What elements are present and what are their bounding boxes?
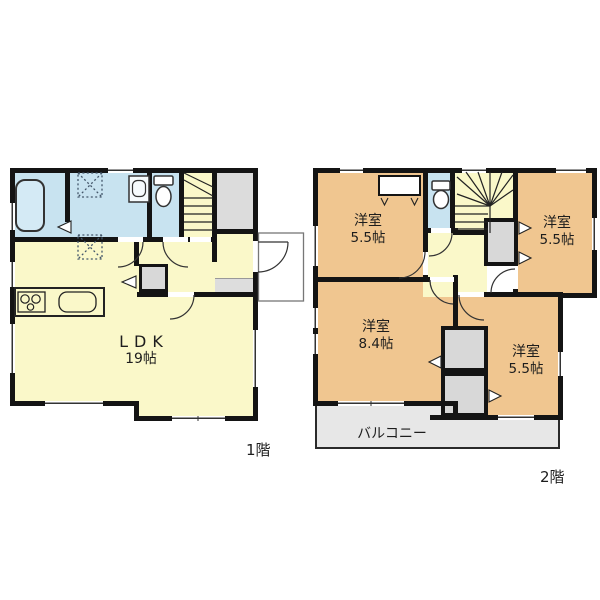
- toilet-icon: [432, 181, 450, 209]
- stairs-icon: [184, 173, 213, 230]
- washing-machine-pad-icon: [78, 173, 102, 197]
- fixtures-layer: [0, 0, 600, 600]
- door-arc-icon: [399, 233, 515, 320]
- washing-machine-pad-icon: [78, 235, 102, 259]
- toilet-icon: [154, 176, 173, 207]
- room-label-bottom-left: 洋室 8.4帖: [328, 319, 424, 353]
- washbasin-icon: [129, 176, 149, 202]
- balcony-label: バルコニー: [346, 423, 438, 443]
- room-name: 洋室: [320, 213, 416, 230]
- room-label-top-right: 洋室 5.5帖: [509, 215, 600, 249]
- room-label-bottom-right: 洋室 5.5帖: [480, 344, 572, 378]
- floor2-label: 2階: [540, 466, 565, 487]
- room-size: 8.4帖: [328, 336, 424, 353]
- floor1-label: 1階: [246, 439, 271, 460]
- kitchen-sink-icon: [59, 292, 96, 312]
- ldk-name: LDK: [95, 333, 187, 351]
- floorplan-image: LDK 19帖 1階 洋室 5.5帖 洋室 5.5帖 洋室 8.4帖 洋室 5.…: [0, 0, 600, 600]
- room-label-ldk: LDK 19帖: [95, 333, 187, 368]
- stairs-icon: [455, 172, 513, 233]
- ldk-size: 19帖: [95, 351, 187, 368]
- room-size: 5.5帖: [480, 361, 572, 378]
- kitchen-counter: [15, 288, 104, 316]
- window-tick: [198, 401, 371, 421]
- room-size: 5.5帖: [509, 232, 600, 249]
- room-label-top-left: 洋室 5.5帖: [320, 213, 416, 247]
- room-size: 5.5帖: [320, 230, 416, 247]
- bathtub-icon: [16, 180, 44, 231]
- room-name: 洋室: [509, 215, 600, 232]
- room-name: 洋室: [328, 319, 424, 336]
- room-name: 洋室: [480, 344, 572, 361]
- entrance-porch: [259, 233, 304, 301]
